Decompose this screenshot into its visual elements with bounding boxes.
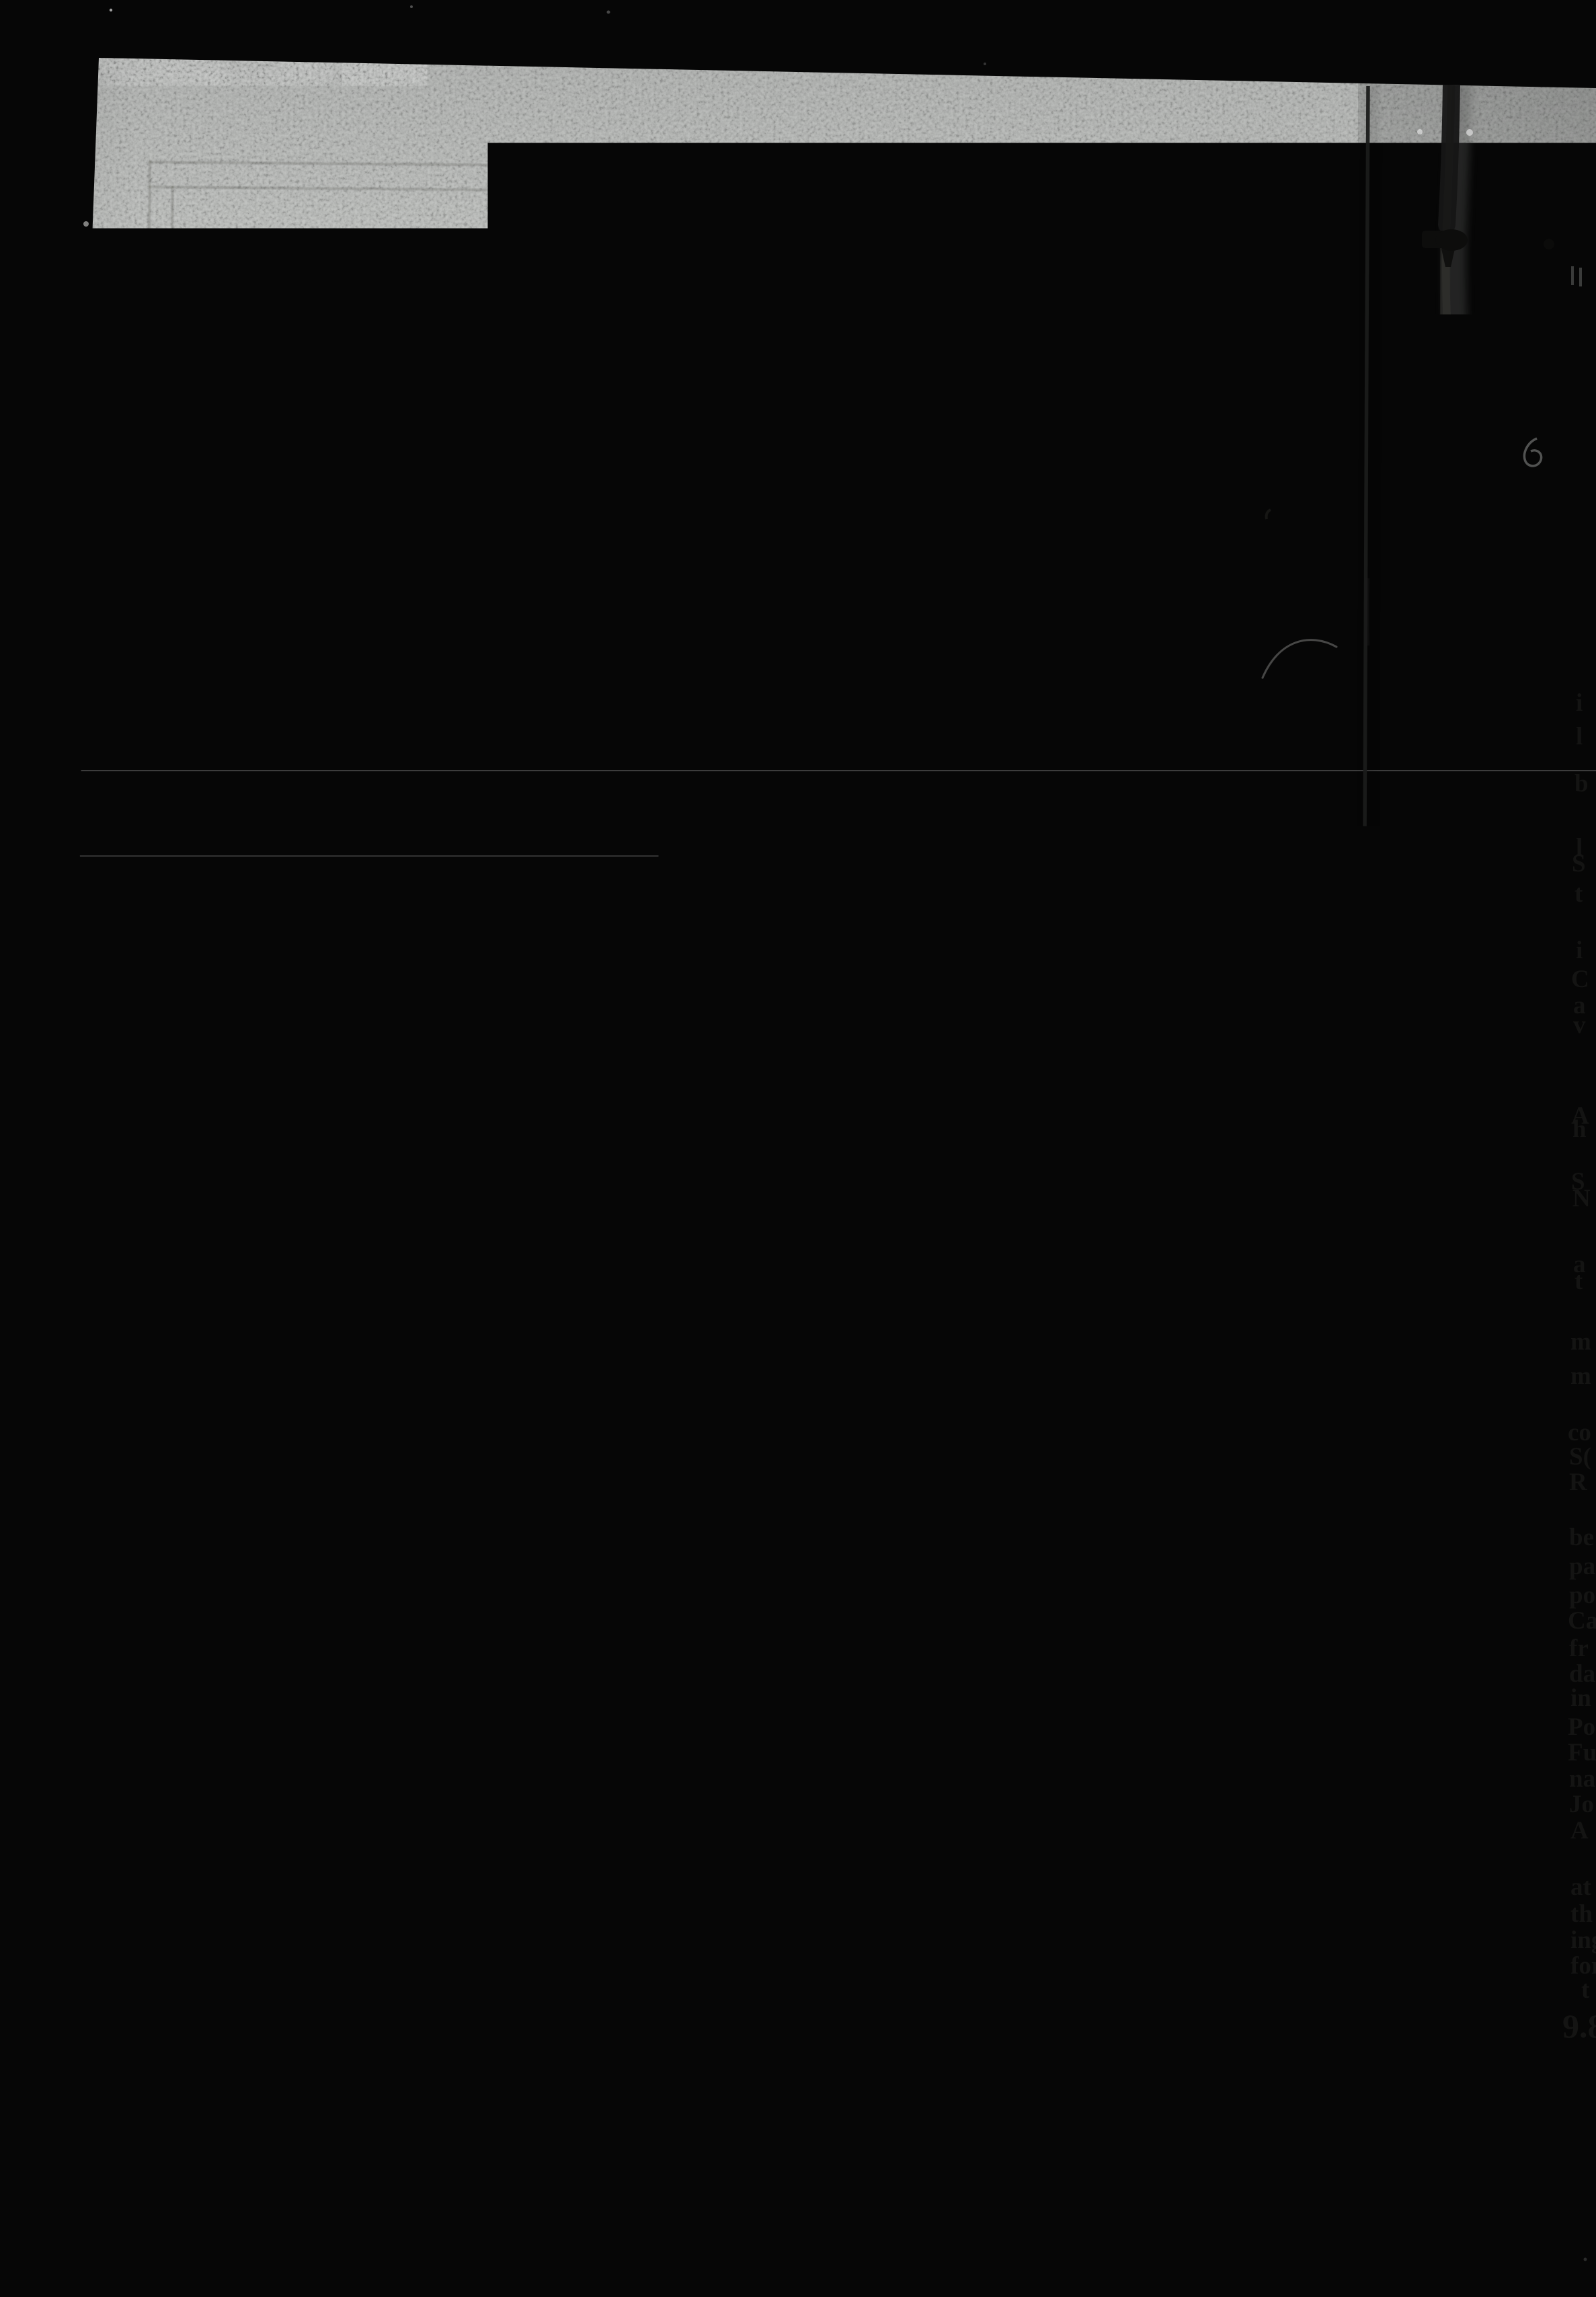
svg-text:fr: fr [1569,1635,1589,1662]
svg-text:po: po [1569,1582,1595,1609]
svg-text:at: at [1570,1873,1592,1901]
svg-text:t: t [1574,1268,1583,1295]
svg-text:da: da [1569,1660,1595,1688]
svg-text:ing: ing [1570,1926,1596,1954]
svg-text:S: S [1572,850,1586,878]
svg-text:Ca: Ca [1568,1607,1596,1635]
svg-text:9.8: 9.8 [1562,2007,1596,2045]
svg-text:S(: S( [1569,1443,1591,1471]
svg-text:b: b [1574,770,1589,797]
svg-text:l: l [1576,723,1583,750]
svg-text:A: A [1570,1817,1589,1844]
svg-text:t: t [1581,1976,1590,2004]
svg-text:t: t [1574,880,1583,908]
svg-text:pa: pa [1569,1553,1595,1580]
svg-text:m: m [1570,1362,1591,1390]
svg-text:m: m [1570,1328,1591,1356]
svg-text:R: R [1569,1469,1588,1496]
svg-text:Fu: Fu [1568,1739,1596,1766]
svg-text:N: N [1572,1185,1591,1212]
svg-text:th: th [1570,1900,1593,1928]
svg-text:i: i [1576,689,1583,717]
svg-text:co: co [1568,1419,1591,1446]
svg-text:h: h [1572,1116,1587,1143]
svg-text:i: i [1576,937,1583,964]
svg-text:Jo: Jo [1569,1791,1594,1818]
svg-text:in: in [1570,1684,1591,1712]
svg-text:for: for [1570,1952,1596,1980]
svg-text:be: be [1569,1524,1594,1551]
svg-text:Po: Po [1568,1713,1595,1741]
svg-text:na: na [1569,1765,1595,1793]
svg-text:C: C [1571,966,1589,993]
svg-text:v: v [1573,1011,1586,1039]
